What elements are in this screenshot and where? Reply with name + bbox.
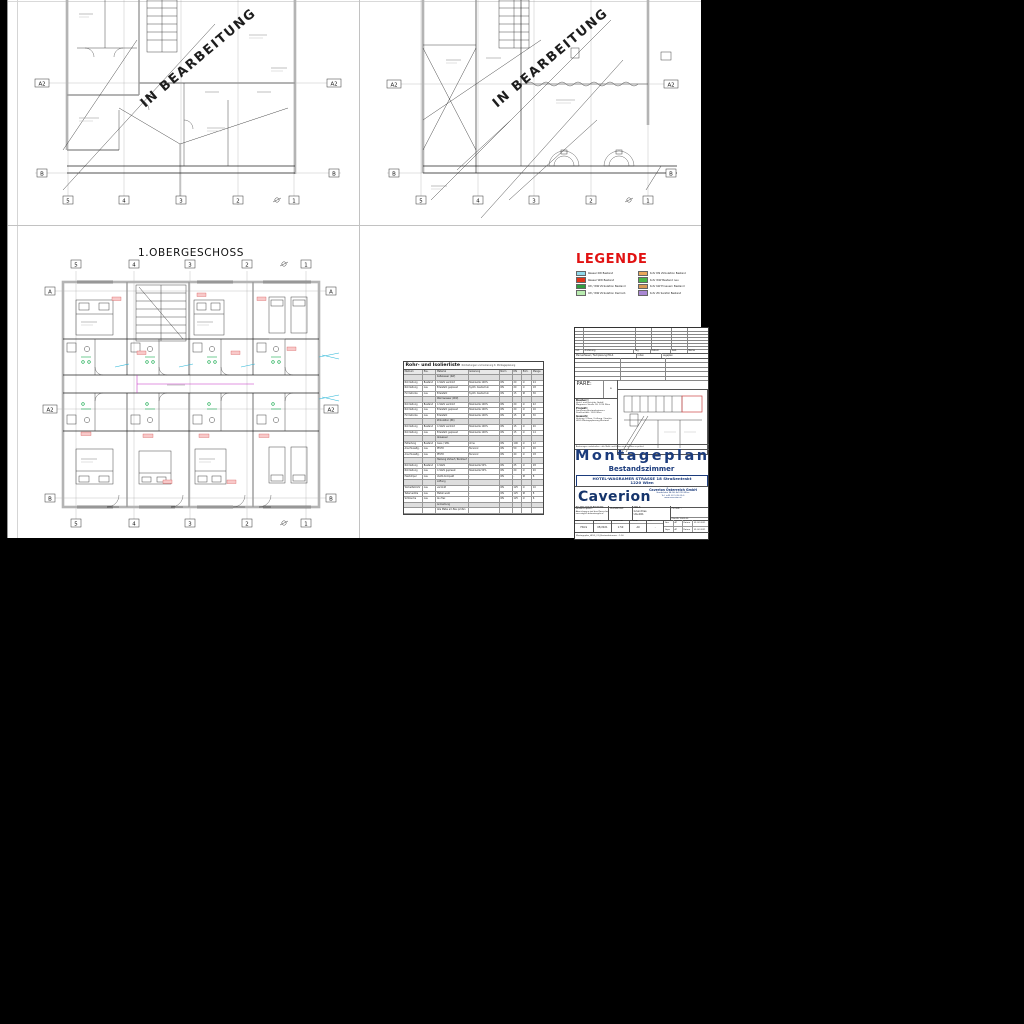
plan-content-row: Alle Maße sind vor Ausführung am Bau zu … [575,506,708,521]
grid-marker-b-left: B [37,169,47,178]
axis-circle-mark [273,198,281,202]
svg-text:2: 2 [245,522,248,528]
svg-text:A2: A2 [327,408,334,414]
signature-cell: Gez. AT Datum 01.02.2021 Gepr. AT Datum … [664,520,708,532]
grid-marker-a-left: A [45,287,55,296]
svg-text:4: 4 [476,199,480,205]
legend-item-label: KW / WW Zirkulation Demont. [588,292,627,295]
grid-marker-col1: 1 [643,196,653,205]
svg-text:A2: A2 [390,83,397,89]
grid-marker-top-col1: 1 [301,260,311,269]
plan-content-label: PLANINHALT: [609,506,632,520]
stamp-field: PARE: a [575,380,618,399]
svg-text:5: 5 [419,199,422,205]
legend-item-label: Rohr DN Zirkulation Bestand [650,272,687,275]
bathroom-fixtures [67,343,293,424]
svg-text:A2: A2 [46,408,53,414]
svg-text:5: 5 [66,199,69,205]
leader-lines [63,24,288,200]
stamp-note: a [603,380,618,398]
svg-text:A: A [329,290,333,296]
titleblock-sections: Bauherr: Hotel- und Betriebs GmbH Wagram… [575,398,618,444]
legend-item-label: Rohr KW Erneuern Bestand [650,285,685,288]
svg-text:3: 3 [179,199,182,205]
svg-text:A: A [48,290,52,296]
svg-text:5: 5 [74,522,77,528]
pipe-table-rows: Medium Pos. Material Isolierung Norm DN … [404,370,543,514]
stair-symbol [147,0,177,52]
legend-item: KW / WW Zirkulation Bestand [576,284,632,289]
viewport-floorplan-top-right[interactable]: IN BEARBEITUNG A2 A2 B B 5 4 3 2 1 [361,0,701,223]
grid-marker-col3: 3 [176,196,186,205]
legend-item: Wasser WW Bestand [576,278,632,283]
legend-panel: LEGENDE Wasser KW Bestand Wasser WW Best… [576,253,708,296]
legend-item: KW / WW Zirkulation Demont. [576,291,632,296]
svg-text:1: 1 [646,199,649,205]
axis-circle-mark [625,198,633,202]
grid-marker-col5: 5 [416,196,426,205]
stair-symbol [499,0,529,48]
viewport-divider-vertical [359,0,360,538]
legend-color-swatch [576,290,586,296]
grid-marker-bottom-col5: 5 [71,519,81,528]
viewer-canvas: IN BEARBEITUNG A2 A2 B B 5 4 3 2 1 [0,0,1024,1024]
legend-color-swatch [638,284,648,290]
pipe-table-subtitle: Rohrleitungen und Isolierung lt. Montage… [462,364,516,367]
svg-text:B: B [329,497,333,503]
legend-color-swatch [638,290,648,296]
svg-text:B: B [48,497,52,503]
viewport-floorplan-top-left[interactable]: IN BEARBEITUNG A2 A2 B B 5 4 3 2 1 [19,0,359,223]
legend-color-swatch [576,271,586,277]
leader-lines [423,20,661,218]
svg-text:5: 5 [74,263,77,269]
company-info: Caverion Österreich GmbH Handelskai 94-9… [639,489,707,501]
notes-cell: Alle Maße sind vor Ausführung am Bau zu … [575,506,609,520]
grid-marker-a2-right: A2 [664,80,678,89]
grid-marker-a2-left: A2 [387,80,401,89]
room-label-marks [431,48,671,189]
grid-marker-top-col3: 3 [185,260,195,269]
legend-title: LEGENDE [576,253,708,267]
legend-item: Rohr WW Bestand neu [638,278,710,283]
project-title: Montageplan [575,448,708,465]
svg-text:3: 3 [532,199,535,205]
svg-text:B: B [669,172,673,178]
grid-marker-top-col5: 5 [71,260,81,269]
axis-circle-mark-bottom [280,521,288,525]
format-cell: Format: - Plan-Nr. 0000-00 [671,506,708,520]
table-row: Alle Maße am Bau prüfen [404,508,543,514]
grid-marker-b-left: B [389,169,399,178]
legend-item-label: Rohr ZK Sanitär Bestand [650,292,682,295]
legend-color-swatch [576,284,586,290]
titleblock-footer: Montageplan_HKLS_OG_Bestandszimmer - 1:5… [575,532,709,539]
legend-color-swatch [638,271,648,277]
grid-marker-col4: 4 [119,196,129,205]
room-label-marks [81,322,285,462]
legend-item: Wasser KW Bestand [576,271,632,276]
legend-item: Rohr ZK Sanitär Bestand [638,291,710,296]
svg-text:1: 1 [304,522,307,528]
svg-text:4: 4 [132,522,136,528]
grid-marker-col3: 3 [529,196,539,205]
drawing-sheet[interactable]: IN BEARBEITUNG A2 A2 B B 5 4 3 2 1 [7,0,701,538]
project-address-line2: 1220 Wien [577,481,707,485]
grid-marker-col1: 1 [289,196,299,205]
floorplan-title: 1.OBERGESCHOSS [138,247,244,259]
title-block: Ind. Änderung Tag Datum Gez. Name Planve… [574,327,709,540]
svg-text:A2: A2 [667,83,674,89]
grid-marker-col4: 4 [473,196,483,205]
grid-marker-top-col4: 4 [129,260,139,269]
svg-text:A2: A2 [330,82,337,88]
svg-text:4: 4 [122,199,126,205]
grid-marker-a2-left: A2 [43,405,57,414]
legend-item-label: Rohr WW Bestand neu [650,279,679,282]
svg-text:1: 1 [292,199,295,205]
walls [63,282,319,507]
grid-marker-a2-left: A2 [35,79,49,88]
pipe-annotations [81,293,339,484]
grid-marker-b-right: B [326,494,336,503]
grid-marker-a2-right: A2 [324,405,338,414]
legend-color-swatch [638,277,648,283]
stair-symbol [136,285,186,341]
legend-item-label: Wasser WW Bestand [588,279,615,282]
legend-item-label: Wasser KW Bestand [588,272,614,275]
titleblock-section: Gewerk: Heizung / Klima / Lüftung / Sani… [575,415,617,422]
grid-marker-col5: 5 [63,196,73,205]
grid-marker-bottom-col2: 2 [242,519,252,528]
titleblock-section: Projekt: Sanierung Bestandszimmer Straße… [575,407,617,414]
svg-text:3: 3 [188,522,191,528]
grid-marker-top-col2: 2 [242,260,252,269]
svg-text:B: B [332,172,336,178]
grid-marker-a-right: A [326,287,336,296]
titleblock-section: Bauherr: Hotel- und Betriebs GmbH Wagram… [575,399,617,406]
svg-text:2: 2 [236,199,239,205]
svg-text:3: 3 [188,263,191,269]
svg-text:B: B [392,172,396,178]
walls [423,0,677,173]
watermark-in-bearbeitung: IN BEARBEITUNG [490,6,612,111]
grid-marker-bottom-col1: 1 [301,519,311,528]
grid-marker-b-right: B [329,169,339,178]
grid-marker-b-left: B [45,494,55,503]
grid-marker-a2-right: A2 [327,79,341,88]
watermark-in-bearbeitung: IN BEARBEITUNG [138,6,260,111]
svg-text:B: B [40,172,44,178]
bed-symbols-bottom [76,447,307,484]
svg-text:2: 2 [589,199,592,205]
grid-marker-b-right: B [666,169,676,178]
plan-content-values: HKLS Grundriss UG-001 [633,506,671,520]
legend-item: Rohr KW Erneuern Bestand [638,284,710,289]
pipe-table-title: Rohr- und Isolierliste Rohrleitungen und… [404,362,543,370]
svg-text:A2: A2 [38,82,45,88]
legend-item-label: KW / WW Zirkulation Bestand [588,285,626,288]
company-row: Caverion Caverion Österreich GmbH Handel… [575,486,708,508]
sheet-inner-edge [17,0,18,538]
viewport-divider-horizontal [8,225,701,226]
door-fan-symbols [549,150,634,166]
legend-items: Wasser KW Bestand Wasser WW Bestand KW /… [576,271,708,296]
grid-marker-col2: 2 [233,196,243,205]
grid-marker-bottom-col4: 4 [129,519,139,528]
viewport-floorplan-first-floor[interactable]: 1.OBERGESCHOSS [19,227,359,538]
grid-marker-bottom-col3: 3 [185,519,195,528]
svg-text:2: 2 [245,263,248,269]
grid-marker-col2: 2 [586,196,596,205]
axis-circle-mark-top [280,262,288,266]
svg-text:1: 1 [304,263,307,269]
bed-symbols-top [76,297,307,335]
svg-text:4: 4 [132,263,136,269]
project-subtitle: Bestandszimmer [575,465,708,473]
pipe-insulation-table: Rohr- und Isolierliste Rohrleitungen und… [403,361,544,515]
legend-color-swatch [576,277,586,283]
legend-item: Rohr DN Zirkulation Bestand [638,271,710,276]
